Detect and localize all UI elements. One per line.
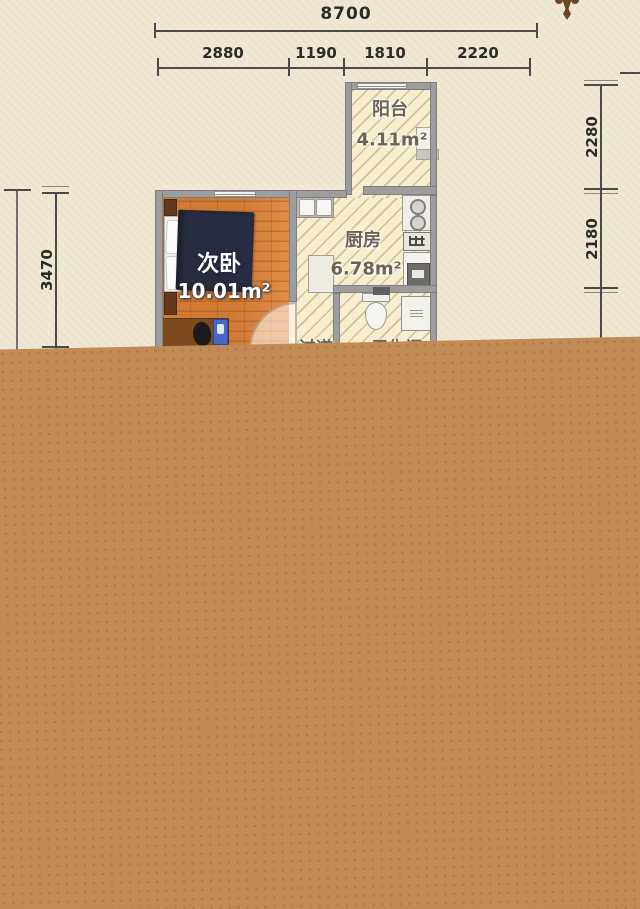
dim-tick — [584, 287, 618, 289]
dim-label-top-total: 8700 — [314, 4, 377, 24]
nightstand — [164, 199, 177, 216]
wall-bedroom-right-upper — [289, 190, 297, 302]
appliance-slot — [412, 270, 424, 278]
dim-label-seg-1: 2880 — [202, 44, 244, 62]
dim-extension-line — [16, 189, 18, 352]
balcony-window — [357, 83, 407, 89]
room-area-kitchen: 6.78m² — [330, 259, 401, 280]
room-label-kitchen: 厨房 — [345, 226, 381, 252]
bathroom-door-threshold — [373, 287, 390, 295]
dim-label-left: 3470 — [38, 249, 56, 291]
room-area-balcony: 4.11m² — [356, 130, 427, 151]
dim-tick — [288, 58, 290, 76]
desk-item — [213, 319, 228, 345]
dim-tick — [584, 292, 618, 293]
room-area-bedroom: 10.01m² — [178, 279, 271, 303]
sink-basin — [316, 199, 332, 216]
room-label-balcony: 阳台 — [372, 95, 408, 121]
brown-cover-block — [0, 336, 640, 909]
dim-tick — [42, 192, 69, 194]
kitchen-sink — [296, 195, 334, 218]
stove-burner — [410, 215, 426, 231]
wall-balcony-left — [345, 82, 352, 195]
dim-extension-line — [620, 72, 640, 74]
dim-label-seg-3: 1810 — [364, 44, 406, 62]
sink-basin — [299, 199, 315, 216]
dim-tick — [584, 84, 618, 86]
cabinet-tiny-label — [410, 310, 423, 317]
bedroom-window — [214, 191, 256, 197]
room-label-bedroom: 次卧 — [197, 246, 241, 278]
dim-tick — [536, 23, 538, 38]
dim-tick — [584, 80, 618, 81]
stove-burner — [410, 199, 426, 215]
dim-tick — [157, 58, 159, 76]
dim-tick — [426, 58, 428, 76]
stove — [402, 195, 431, 231]
dim-label-right-1: 2280 — [583, 116, 601, 158]
dim-tick — [584, 193, 618, 194]
dim-tick — [4, 189, 31, 191]
dim-tick — [529, 58, 531, 76]
floor-plan-canvas: 8700 2880 1190 1810 2220 2280 2180 3470 — [0, 0, 640, 909]
desk-item-detail — [217, 324, 224, 334]
wall-kitchen-right — [430, 195, 437, 352]
washbasin-cabinet — [401, 296, 431, 331]
dim-line-top-total — [155, 30, 537, 32]
dim-label-right-2: 2180 — [583, 218, 601, 260]
dim-tick — [584, 188, 618, 190]
dim-tick — [154, 23, 156, 38]
wall-bedroom-left — [155, 190, 163, 352]
kitchen-appliance-grill — [403, 232, 431, 251]
wall-balcony-bottom — [363, 186, 437, 195]
dim-label-seg-4: 2220 — [457, 44, 499, 62]
wall-balcony-right — [430, 82, 437, 195]
dim-label-seg-2: 1190 — [295, 44, 337, 62]
dim-tick — [343, 58, 345, 76]
dim-tick — [42, 186, 69, 187]
nightstand — [164, 292, 177, 315]
north-arrow-icon — [548, 0, 586, 20]
